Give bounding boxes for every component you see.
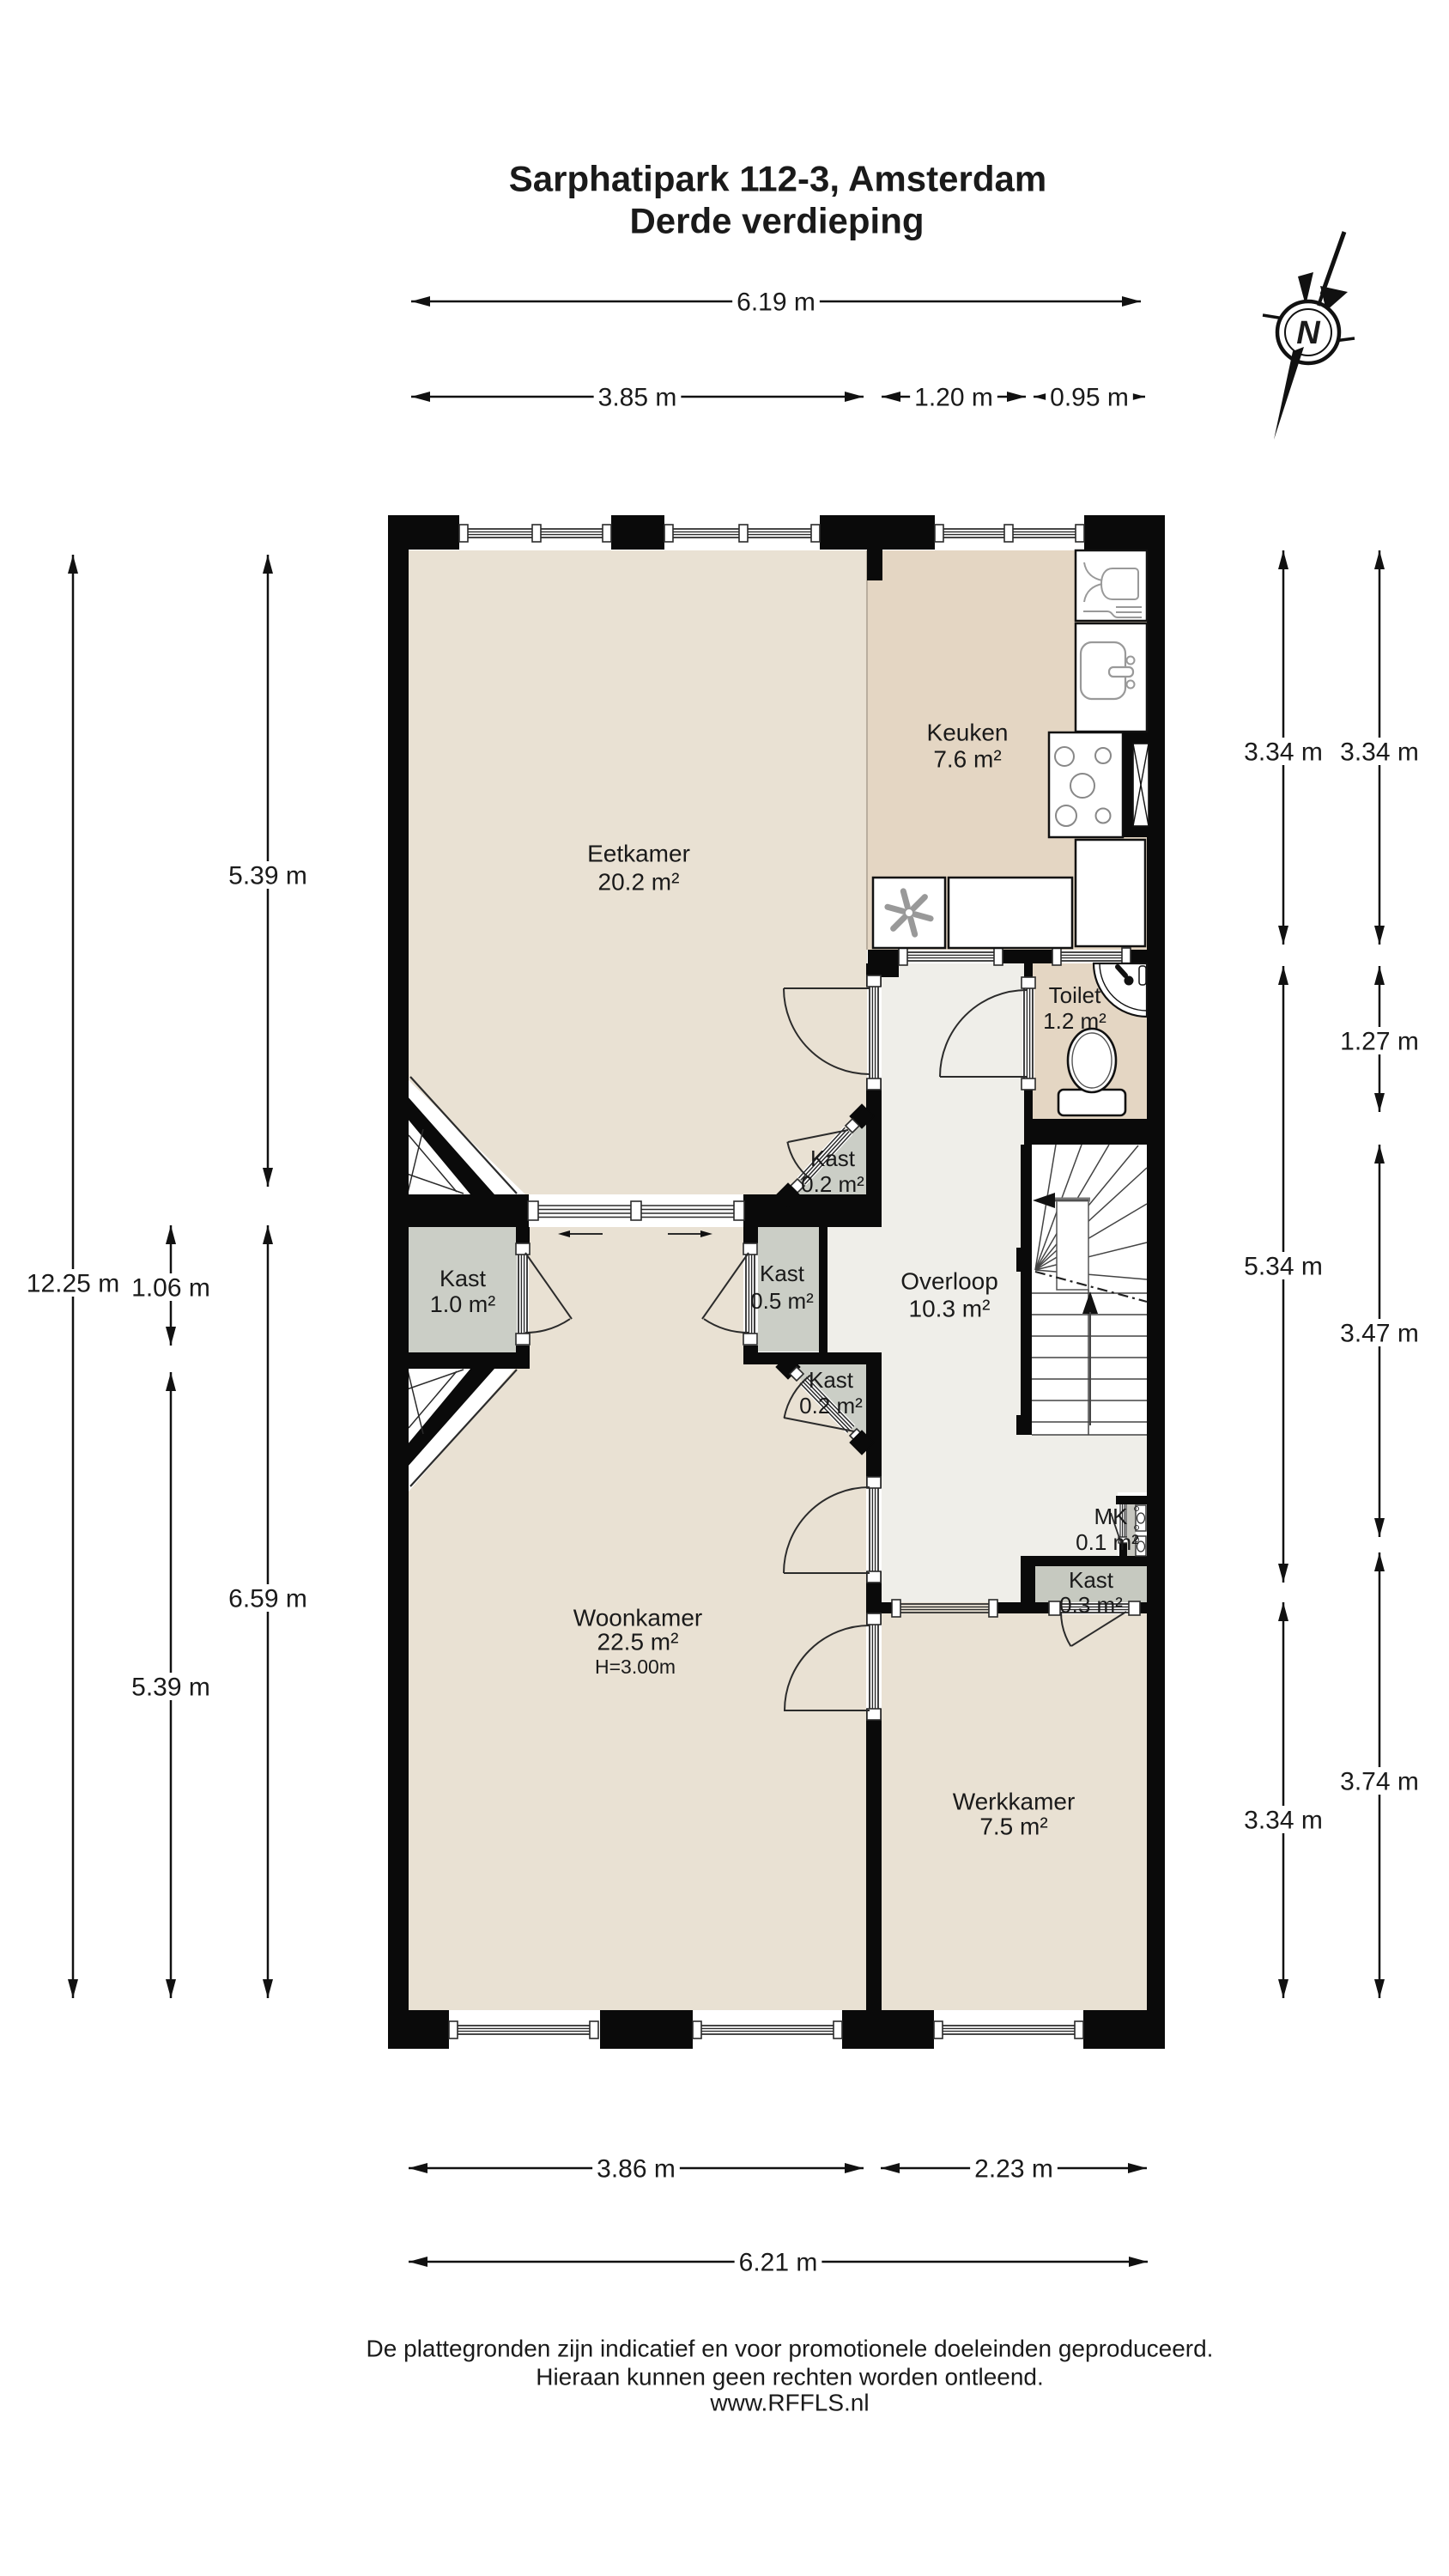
svg-text:0.2 m²: 0.2 m² xyxy=(801,1171,864,1197)
svg-text:7.5 m²: 7.5 m² xyxy=(979,1814,1047,1840)
svg-text:5.39 m: 5.39 m xyxy=(228,862,307,890)
svg-text:0.95 m: 0.95 m xyxy=(1050,384,1129,412)
svg-text:Werkkamer: Werkkamer xyxy=(953,1789,1076,1815)
svg-text:3.86 m: 3.86 m xyxy=(597,2155,676,2184)
svg-text:Kast: Kast xyxy=(809,1367,854,1393)
svg-text:3.74 m: 3.74 m xyxy=(1340,1768,1419,1796)
svg-text:3.34 m: 3.34 m xyxy=(1244,1807,1323,1835)
svg-text:1.20 m: 1.20 m xyxy=(914,384,993,412)
svg-text:Kast: Kast xyxy=(810,1145,856,1171)
svg-text:3.47 m: 3.47 m xyxy=(1340,1320,1419,1348)
svg-text:1.0 m²: 1.0 m² xyxy=(430,1291,496,1317)
svg-text:0.5 m²: 0.5 m² xyxy=(750,1288,814,1314)
svg-text:5.39 m: 5.39 m xyxy=(131,1674,210,1702)
svg-text:Keuken: Keuken xyxy=(927,720,1009,746)
svg-text:N: N xyxy=(1296,315,1321,351)
svg-text:Toilet: Toilet xyxy=(1049,982,1101,1008)
svg-text:1.06 m: 1.06 m xyxy=(131,1274,210,1303)
svg-text:6.19 m: 6.19 m xyxy=(737,289,815,317)
svg-text:H=3.00m: H=3.00m xyxy=(595,1656,676,1678)
svg-text:3.85 m: 3.85 m xyxy=(598,384,677,412)
svg-text:Overloop: Overloop xyxy=(900,1268,998,1295)
svg-text:Hieraan kunnen geen rechten wo: Hieraan kunnen geen rechten worden ontle… xyxy=(536,2364,1044,2391)
svg-text:2.23 m: 2.23 m xyxy=(974,2155,1053,2184)
svg-text:0.1 m²: 0.1 m² xyxy=(1076,1529,1139,1555)
svg-text:0.2 m²: 0.2 m² xyxy=(799,1393,863,1419)
svg-text:20.2 m²: 20.2 m² xyxy=(598,869,680,896)
svg-text:De plattegronden zijn indicati: De plattegronden zijn indicatief en voor… xyxy=(367,2336,1214,2362)
svg-text:7.6 m²: 7.6 m² xyxy=(933,746,1001,773)
svg-text:Sarphatipark 112-3, Amsterdam: Sarphatipark 112-3, Amsterdam xyxy=(509,159,1046,199)
svg-text:22.5 m²: 22.5 m² xyxy=(597,1629,679,1656)
svg-text:0.3 m²: 0.3 m² xyxy=(1059,1592,1123,1618)
svg-text:Kast: Kast xyxy=(1069,1567,1114,1593)
svg-text:12.25 m: 12.25 m xyxy=(27,1270,119,1298)
svg-text:6.59 m: 6.59 m xyxy=(228,1585,307,1613)
svg-text:Derde verdieping: Derde verdieping xyxy=(629,201,924,241)
svg-text:www.RFFLS.nl: www.RFFLS.nl xyxy=(709,2390,869,2416)
svg-text:Woonkamer: Woonkamer xyxy=(573,1605,702,1631)
svg-text:1.27 m: 1.27 m xyxy=(1340,1028,1419,1056)
svg-text:Kast: Kast xyxy=(440,1266,487,1291)
svg-text:MK: MK xyxy=(1094,1504,1129,1529)
svg-text:3.34 m: 3.34 m xyxy=(1244,738,1323,767)
svg-text:Eetkamer: Eetkamer xyxy=(587,841,690,867)
svg-text:6.21 m: 6.21 m xyxy=(739,2249,818,2277)
svg-text:10.3 m²: 10.3 m² xyxy=(909,1296,991,1322)
svg-text:3.34 m: 3.34 m xyxy=(1340,738,1419,767)
svg-text:1.2 m²: 1.2 m² xyxy=(1043,1008,1106,1034)
svg-text:Kast: Kast xyxy=(760,1261,805,1286)
svg-text:5.34 m: 5.34 m xyxy=(1244,1253,1323,1281)
